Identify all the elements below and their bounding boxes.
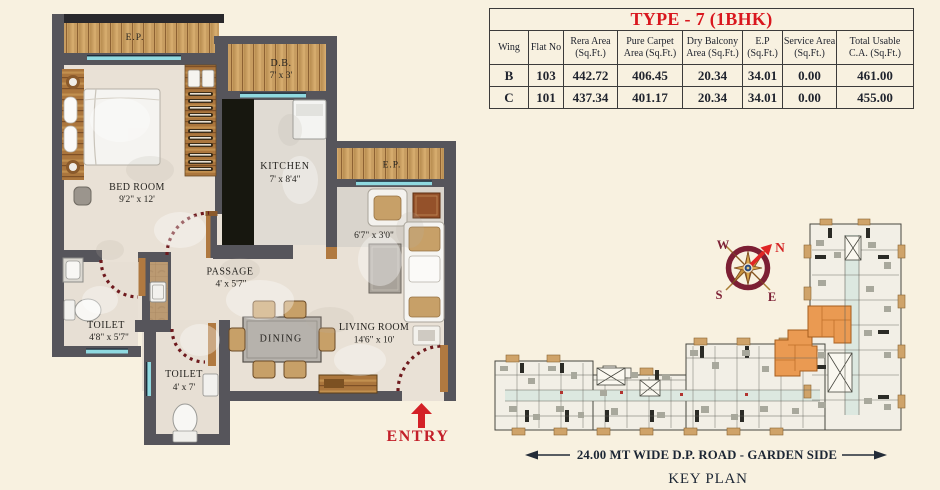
svg-text:N: N [775,240,785,255]
svg-text:E.P.: E.P. [383,161,402,171]
svg-text:LIVING ROOM: LIVING ROOM [339,322,409,333]
svg-text:7' x 8'4": 7' x 8'4" [269,175,300,185]
svg-text:9'2" x 12': 9'2" x 12' [119,195,155,205]
svg-text:6'7" x 3'0": 6'7" x 3'0" [354,231,394,241]
svg-text:PASSAGE: PASSAGE [206,267,253,278]
svg-text:TOILET: TOILET [165,369,203,380]
svg-text:7' x 3': 7' x 3' [270,71,293,81]
svg-text:E.P.: E.P. [126,33,145,43]
svg-text:S: S [716,288,723,302]
svg-text:KEY PLAN: KEY PLAN [668,471,748,487]
svg-text:4' x 7': 4' x 7' [173,383,196,393]
svg-text:4' x 5'7": 4' x 5'7" [215,280,246,290]
svg-text:BED ROOM: BED ROOM [109,182,165,193]
svg-text:D.B.: D.B. [271,58,292,69]
svg-text:4'8" x 5'7": 4'8" x 5'7" [89,333,129,343]
svg-text:KITCHEN: KITCHEN [260,161,309,172]
svg-text:DINING: DINING [260,334,303,345]
svg-text:14'6" x 10': 14'6" x 10' [354,336,395,346]
svg-text:ENTRY: ENTRY [387,428,450,445]
svg-text:E: E [768,290,776,304]
svg-text:24.00 MT WIDE D.P. ROAD - GARD: 24.00 MT WIDE D.P. ROAD - GARDEN SIDE [577,448,837,462]
svg-text:W: W [717,238,730,252]
svg-text:TOILET: TOILET [87,320,125,331]
